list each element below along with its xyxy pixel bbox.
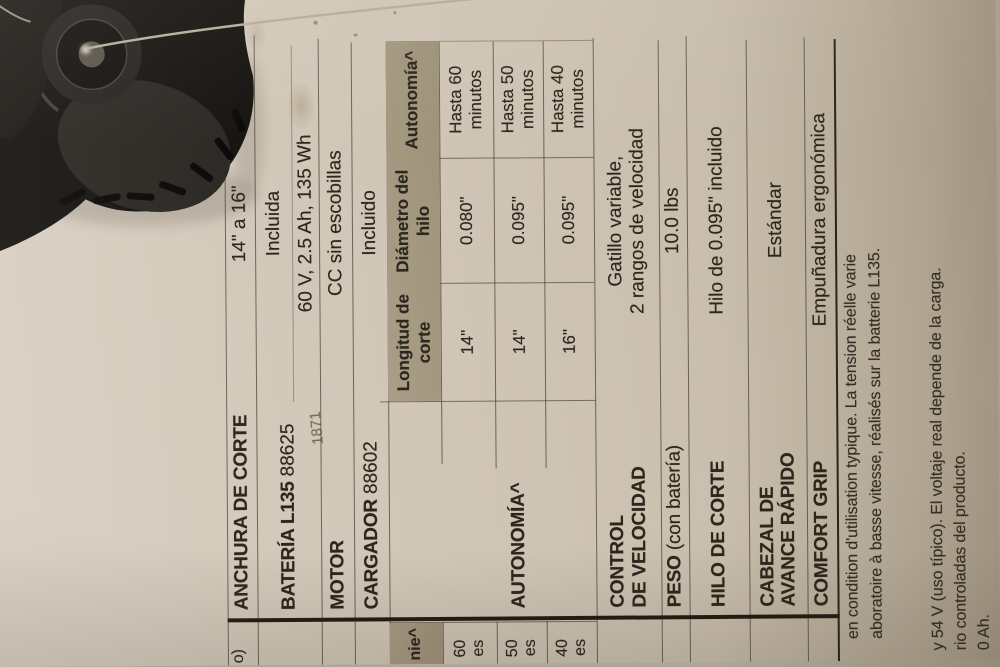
footnote-spanish-3: 0 Ah. <box>976 614 994 650</box>
value-text: 2 rangos de velocidad <box>626 128 649 314</box>
label-text: PESO <box>665 555 686 607</box>
trimmer-head-photo <box>0 0 557 277</box>
fragment-text: es <box>470 640 489 657</box>
spec-value-peso: 10.0 lbs <box>658 42 688 399</box>
cutoff-fragment-autonomy-row: 60 es <box>443 640 497 664</box>
cutoff-fragment-autonomy-header: nie^ <box>390 628 443 664</box>
footnote-french-2: aboratoire à basse vitesse, réalisés sur… <box>866 248 887 639</box>
line-eyelet-highlight <box>81 45 90 54</box>
box-photo: 1871 ANCHURA DE CORTE <box>0 0 1000 667</box>
value-text: Hilo de 0.095" incluido <box>705 126 728 315</box>
fragment-text: es <box>572 639 591 656</box>
cell-text: 0.095" <box>559 196 579 245</box>
spec-row-label-comfort: COMFORT GRIP <box>806 406 837 606</box>
footnote-french-1: en condition d'utilisation typique. La t… <box>842 254 863 639</box>
autonomy-cell: 14" <box>494 283 545 400</box>
spec-row-label-motor: MOTOR <box>320 410 354 610</box>
label-text: AVANCE RÁPIDO <box>777 406 800 606</box>
cell-text: 14" <box>510 329 530 354</box>
spec-value-cabezal: Estándar <box>746 41 806 398</box>
spec-value-hilo: Hilo de 0.095" incluido <box>686 42 748 399</box>
value-text: 10.0 lbs <box>662 187 684 254</box>
cell-text: 16" <box>560 329 580 354</box>
spec-row-label-hilo: HILO DE CORTE <box>688 407 749 607</box>
spec-row-label-control: CONTROL DE VELOCIDAD <box>595 407 661 607</box>
model-number: 88625 <box>278 423 299 476</box>
label-text: AUTONOMÍA^ <box>508 408 531 608</box>
label-text: ANCHURA DE CORTE <box>231 410 254 610</box>
spec-row-label-peso: PESO (con batería) <box>660 407 689 607</box>
autonomy-col-header-longitud: Longitud de corte <box>387 284 441 401</box>
fragment-text: nie^ <box>407 628 426 661</box>
label-text: CONTROL <box>606 408 629 608</box>
spec-row-label-autonomia: AUTONOMÍA^ <box>441 408 596 609</box>
fragment-text: o) <box>230 649 247 663</box>
label-text: HILO DE CORTE <box>708 407 731 607</box>
spec-row-label-anchura: ANCHURA DE CORTE <box>226 410 257 610</box>
fragment-text: 60 <box>451 640 470 658</box>
footnote-spanish-2: rio controladas del producto. <box>952 451 971 650</box>
spec-row-label-cabezal: CABEZAL DE AVANCE RÁPIDO <box>748 406 807 606</box>
autonomy-cell: 16" <box>544 283 595 400</box>
label-text: CABEZAL DE <box>756 407 779 607</box>
spec-value-comfort: Empuñadura ergonómica <box>804 41 836 398</box>
footnote-spanish-1: y 54 V (uso típico). El voltaje real dep… <box>927 267 948 650</box>
value-text: Estándar <box>765 182 787 258</box>
label-text: CARGADOR <box>361 499 383 609</box>
fragment-text: es <box>522 639 541 656</box>
header-text: Longitud de corte <box>394 290 435 395</box>
spec-row-label-cargador: CARGADOR 88602 <box>353 409 389 609</box>
label-note: (con batería) <box>664 445 686 550</box>
cutoff-fragment-autonomy-row: 40 es <box>547 639 597 663</box>
cutoff-fragment-row1: o) <box>230 649 248 663</box>
label-text: DE VELOCIDAD <box>628 407 651 607</box>
fragment-text: 50 <box>503 639 522 657</box>
label-text: BATERÍA L135 <box>278 481 300 610</box>
cutoff-fragment-autonomy-row: 50 es <box>497 639 547 663</box>
rotated-box-panel: 1871 ANCHURA DE CORTE <box>0 0 1000 667</box>
model-number: 88602 <box>360 441 381 494</box>
fragment-text: 40 <box>553 639 572 657</box>
spec-value-control: Gatillo variable, 2 rangos de velocidad <box>593 42 660 399</box>
spec-row-label-bateria: BATERÍA L135 88625 <box>256 410 321 610</box>
label-text: MOTOR <box>326 410 349 610</box>
cell-text: 14" <box>458 330 478 355</box>
label-text: COMFORT GRIP <box>811 406 834 606</box>
autonomy-cell: 14" <box>440 284 495 401</box>
value-text: Gatillo variable, <box>604 156 627 287</box>
value-text: Empuñadura ergonómica <box>808 113 831 327</box>
